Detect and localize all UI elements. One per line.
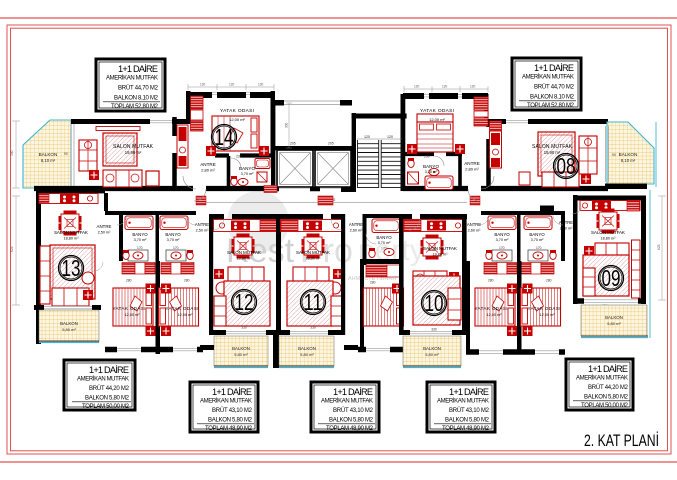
svg-text:BRÜT 44,70 M2: BRÜT 44,70 M2: [534, 84, 575, 91]
svg-text:18,80 m²: 18,80 m²: [306, 257, 322, 261]
svg-text:TOPLAM 50,00 M2: TOPLAM 50,00 M2: [581, 403, 629, 409]
svg-text:300: 300: [285, 122, 289, 128]
svg-text:12,00 m²: 12,00 m²: [487, 313, 503, 317]
svg-text:2,50 m²: 2,50 m²: [196, 229, 210, 233]
svg-text:08: 08: [557, 153, 576, 179]
svg-text:120: 120: [442, 85, 448, 89]
svg-text:AMERİKAN MUTFAK: AMERİKAN MUTFAK: [77, 376, 129, 383]
svg-text:AMERİKAN MUTFAK: AMERİKAN MUTFAK: [200, 398, 252, 405]
svg-text:5,80 m²: 5,80 m²: [300, 352, 314, 357]
svg-text:BALKON: BALKON: [619, 152, 638, 157]
svg-text:1+1 DAİRE: 1+1 DAİRE: [118, 64, 158, 74]
svg-text:230: 230: [236, 155, 242, 159]
svg-text:205: 205: [290, 142, 296, 146]
svg-text:SALON MUTFAK: SALON MUTFAK: [296, 250, 331, 255]
svg-text:BALKON: BALKON: [60, 321, 78, 326]
svg-text:BALKON: BALKON: [298, 346, 316, 351]
svg-text:2,60 m²: 2,60 m²: [468, 229, 482, 233]
svg-text:170: 170: [173, 246, 179, 250]
svg-text:ANTRE: ANTRE: [195, 222, 209, 227]
svg-text:ANTRE: ANTRE: [97, 224, 112, 229]
svg-text:3,70 m²: 3,70 m²: [241, 172, 255, 176]
svg-text:TOPLAM 48,90 M2: TOPLAM 48,90 M2: [442, 426, 490, 432]
svg-text:BALKON: BALKON: [423, 346, 441, 351]
svg-text:BANYO: BANYO: [165, 232, 181, 237]
svg-text:BRÜT 44,20 M2: BRÜT 44,20 M2: [588, 384, 629, 391]
svg-text:BALKON 5,80 M2: BALKON 5,80 M2: [208, 418, 253, 424]
svg-text:2,60 m²: 2,60 m²: [350, 229, 364, 233]
svg-text:YATAK ODASI: YATAK ODASI: [220, 108, 254, 114]
svg-text:2. KAT PLANİ: 2. KAT PLANİ: [584, 431, 659, 450]
svg-text:ANTRE: ANTRE: [467, 222, 481, 227]
svg-text:1+1 DAİRE: 1+1 DAİRE: [89, 365, 129, 375]
svg-text:BANYO: BANYO: [423, 164, 440, 169]
svg-text:BRÜT 44,20 M2: BRÜT 44,20 M2: [89, 385, 130, 392]
svg-text:625: 625: [657, 244, 661, 250]
svg-text:12,00 m²: 12,00 m²: [229, 117, 245, 122]
svg-text:1+1 DAİRE: 1+1 DAİRE: [449, 387, 489, 397]
svg-text:12: 12: [235, 289, 254, 315]
svg-text:ANTRE: ANTRE: [200, 162, 216, 167]
svg-text:280: 280: [546, 279, 552, 283]
svg-text:5,80 m²: 5,80 m²: [607, 321, 621, 326]
svg-text:3,70 m²: 3,70 m²: [531, 238, 545, 242]
svg-text:14: 14: [215, 124, 234, 150]
svg-text:BALKON 8,10 M2: BALKON 8,10 M2: [114, 96, 159, 102]
svg-text:3,70 m²: 3,70 m²: [496, 238, 510, 242]
svg-text:YATAK ODASI: YATAK ODASI: [475, 306, 508, 311]
svg-text:2,80 m²: 2,80 m²: [201, 168, 215, 173]
svg-text:BANYO: BANYO: [494, 232, 510, 237]
svg-text:12,00 m²: 12,00 m²: [540, 313, 556, 317]
svg-text:330: 330: [431, 328, 437, 332]
svg-text:170: 170: [137, 246, 143, 250]
svg-text:12,00 m²: 12,00 m²: [178, 313, 194, 317]
svg-text:120: 120: [414, 85, 420, 89]
svg-text:330: 330: [241, 326, 247, 330]
svg-text:BALKON 5,80 M2: BALKON 5,80 M2: [584, 395, 629, 401]
svg-text:TOPLAM 52,80 M2: TOPLAM 52,80 M2: [111, 104, 159, 110]
svg-text:120: 120: [229, 83, 235, 87]
svg-text:ANTRE: ANTRE: [349, 222, 363, 227]
svg-text:2,80 m²: 2,80 m²: [465, 167, 479, 172]
svg-text:BALKON: BALKON: [39, 152, 58, 157]
svg-text:BALKON: BALKON: [605, 315, 623, 320]
svg-text:120: 120: [470, 85, 476, 89]
svg-text:5,80 m²: 5,80 m²: [234, 352, 248, 357]
svg-text:18,80 m²: 18,80 m²: [64, 237, 80, 241]
svg-text:1+1 DAİRE: 1+1 DAİRE: [212, 387, 252, 397]
svg-text:300: 300: [10, 150, 14, 156]
svg-text:BRÜT 43,10 M2: BRÜT 43,10 M2: [449, 407, 490, 414]
svg-text:330: 330: [310, 326, 316, 330]
svg-text:13: 13: [62, 255, 81, 281]
svg-text:AMERİKAN MUTFAK: AMERİKAN MUTFAK: [106, 75, 158, 82]
svg-text:205: 205: [328, 142, 334, 146]
svg-text:TOPLAM 52,80 M2: TOPLAM 52,80 M2: [527, 103, 575, 109]
svg-text:10: 10: [425, 290, 444, 316]
svg-text:19,90 m²: 19,90 m²: [125, 150, 142, 155]
svg-text:1+1 DAİRE: 1+1 DAİRE: [534, 63, 574, 73]
svg-text:8,10 m²: 8,10 m²: [41, 158, 56, 163]
svg-text:AMERİKAN MUTFAK: AMERİKAN MUTFAK: [522, 74, 574, 81]
svg-text:SALON MUTFAK: SALON MUTFAK: [54, 230, 89, 235]
svg-text:120: 120: [387, 135, 393, 139]
svg-text:11: 11: [304, 289, 323, 315]
svg-text:BANYO: BANYO: [132, 232, 148, 237]
svg-text:AMERİKAN MUTFAK: AMERİKAN MUTFAK: [321, 398, 373, 405]
svg-text:TOPLAM 48,90 M2: TOPLAM 48,90 M2: [326, 426, 374, 432]
svg-text:BALKON 5,80 M2: BALKON 5,80 M2: [445, 418, 490, 424]
svg-text:SALON MUTFAK: SALON MUTFAK: [423, 246, 458, 251]
svg-text:BALKON 8,10 M2: BALKON 8,10 M2: [530, 95, 575, 101]
svg-text:BRÜT 43,10 M2: BRÜT 43,10 M2: [212, 407, 253, 414]
svg-text:BRÜT 44,70 M2: BRÜT 44,70 M2: [118, 85, 159, 92]
svg-text:ANTRE: ANTRE: [559, 220, 573, 225]
svg-text:BALKON 5,80 M2: BALKON 5,80 M2: [329, 418, 374, 424]
svg-text:280: 280: [184, 279, 190, 283]
svg-text:YATAK ODASI: YATAK ODASI: [528, 306, 561, 311]
svg-text:230: 230: [424, 155, 430, 159]
svg-text:3,20 m²: 3,20 m²: [425, 170, 439, 174]
svg-text:BANYO: BANYO: [376, 235, 392, 240]
svg-text:SALON MUTFAK: SALON MUTFAK: [227, 250, 262, 255]
svg-text:YATAK ODASI: YATAK ODASI: [166, 306, 199, 311]
svg-text:TOPLAM 50,00 M2: TOPLAM 50,00 M2: [82, 404, 130, 410]
svg-text:BANYO: BANYO: [239, 166, 256, 171]
svg-text:625: 625: [10, 246, 14, 252]
svg-text:BALKON: BALKON: [232, 346, 250, 351]
svg-text:09: 09: [602, 265, 621, 291]
svg-text:ANTRE: ANTRE: [464, 161, 480, 166]
svg-text:AMERİKAN MUTFAK: AMERİKAN MUTFAK: [576, 375, 628, 382]
svg-text:1+1 DAİRE: 1+1 DAİRE: [588, 364, 628, 374]
svg-text:1+1 DAİRE: 1+1 DAİRE: [333, 387, 373, 397]
svg-text:8,10 m²: 8,10 m²: [621, 158, 636, 163]
svg-text:90: 90: [612, 153, 616, 157]
svg-text:280: 280: [126, 279, 132, 283]
svg-text:120: 120: [364, 135, 370, 139]
svg-text:SALON MUTFAK: SALON MUTFAK: [591, 230, 626, 235]
svg-text:170: 170: [499, 246, 505, 250]
svg-text:90: 90: [64, 152, 68, 156]
svg-text:120: 120: [200, 83, 206, 87]
svg-text:5,80 m²: 5,80 m²: [62, 327, 76, 332]
svg-text:170: 170: [536, 246, 542, 250]
svg-text:120: 120: [258, 83, 264, 87]
svg-text:2,50 m²: 2,50 m²: [98, 231, 112, 235]
svg-text:AMERİKAN MUTFAK: AMERİKAN MUTFAK: [437, 398, 489, 405]
svg-text:12,00 m²: 12,00 m²: [125, 313, 141, 317]
svg-text:170: 170: [381, 247, 387, 251]
svg-text:18,80 m²: 18,80 m²: [601, 237, 617, 241]
svg-text:280: 280: [488, 279, 494, 283]
svg-text:BRÜT 43,10 M2: BRÜT 43,10 M2: [333, 407, 374, 414]
svg-text:BALKON 5,80 M2: BALKON 5,80 M2: [85, 396, 130, 402]
svg-text:12,00 m²: 12,00 m²: [429, 117, 445, 122]
svg-text:280: 280: [370, 281, 376, 285]
svg-text:TOPLAM 48,90 M2: TOPLAM 48,90 M2: [205, 426, 253, 432]
svg-text:18,80 m²: 18,80 m²: [237, 257, 253, 261]
svg-text:3,70 m²: 3,70 m²: [134, 238, 148, 242]
svg-text:3,70 m²: 3,70 m²: [167, 238, 181, 242]
svg-text:YATAK ODASI: YATAK ODASI: [420, 108, 454, 114]
svg-text:3,70 m²: 3,70 m²: [378, 241, 392, 245]
svg-text:2,50 m²: 2,50 m²: [560, 227, 574, 231]
svg-text:BANYO: BANYO: [529, 232, 545, 237]
svg-text:5,80 m²: 5,80 m²: [425, 352, 439, 357]
svg-text:19,80 m²: 19,80 m²: [433, 253, 449, 257]
svg-text:YATAK ODASI: YATAK ODASI: [113, 306, 146, 311]
